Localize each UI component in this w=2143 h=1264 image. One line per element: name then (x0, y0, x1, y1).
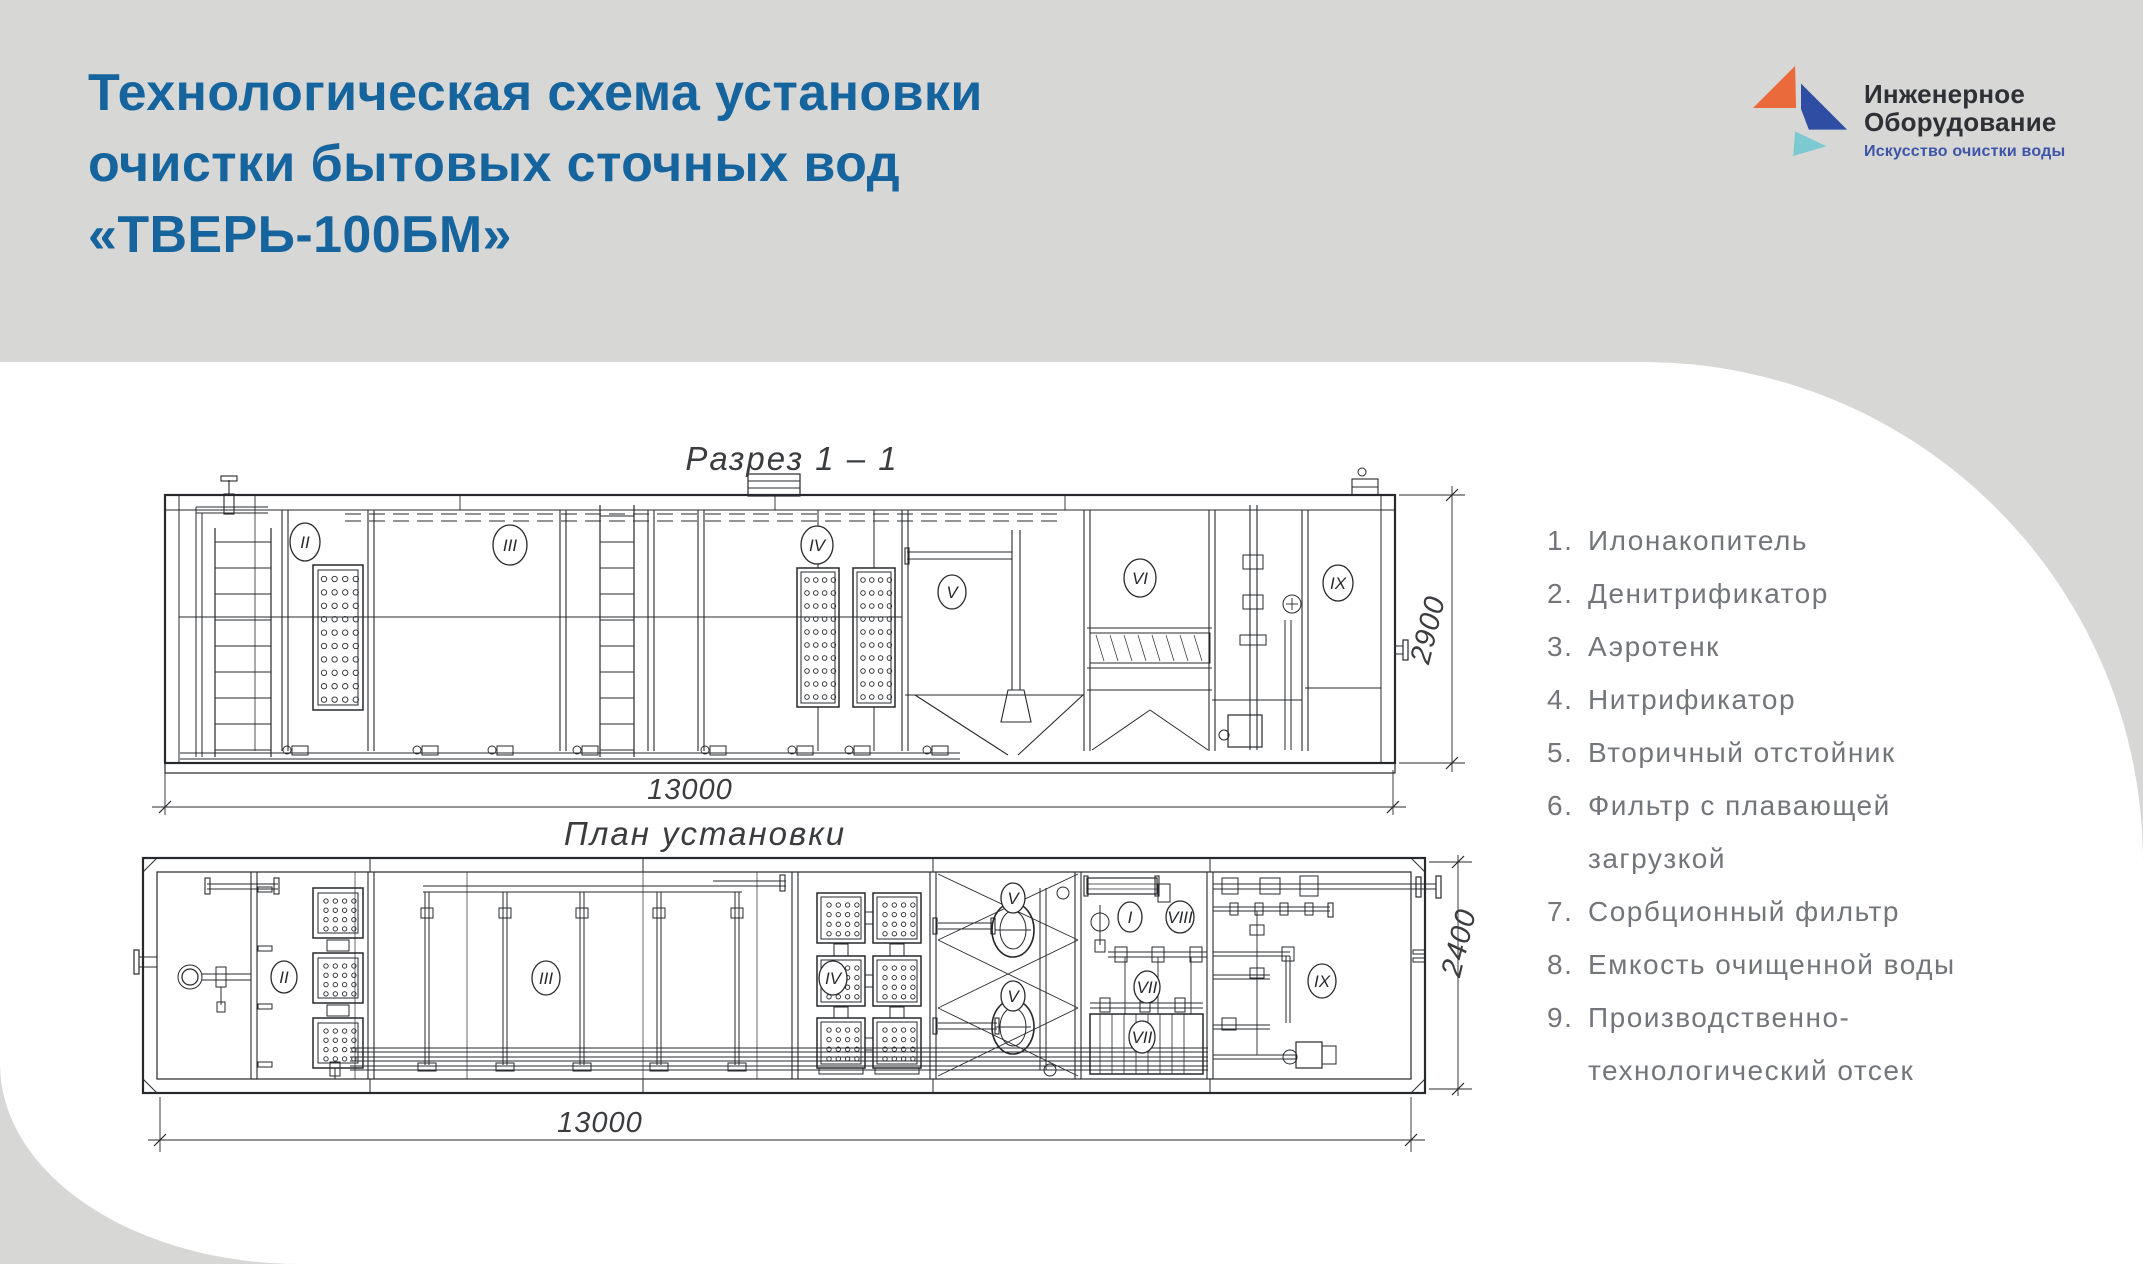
section-title: Разрез 1 – 1 (685, 440, 898, 477)
legend-item-text: Емкость очищенной воды (1588, 938, 1987, 991)
svg-text:VI: VI (1132, 569, 1148, 588)
logo-name-line-1: Инженерное (1864, 80, 2065, 108)
technical-drawings: II III IV V VI IX II III IV V V I VIII V… (110, 425, 1500, 1170)
plan-label-VIII: VIII (1166, 901, 1194, 933)
logo-text: Инженерное Оборудование Искусство очистк… (1864, 60, 2065, 161)
section-width-dimension: 13000 (647, 774, 733, 806)
svg-text:VII: VII (1137, 978, 1158, 997)
legend-item: 9.Производственно-технологический отсек (1547, 991, 1987, 1097)
plan-label-VII2: VII (1129, 1021, 1155, 1053)
legend-item-number: 2. (1547, 567, 1588, 620)
logo-name-line-2: Оборудование (1864, 108, 2065, 136)
legend-item-number: 4. (1547, 673, 1588, 726)
logo-pinwheel-icon (1752, 60, 1850, 158)
plan-height-dimension: 2400 (1435, 906, 1483, 981)
legend-item-number: 9. (1547, 991, 1588, 1044)
legend-item-number: 1. (1547, 514, 1588, 567)
plan-label-I: I (1118, 902, 1142, 932)
slide: { "header": { "title_lines": [ "Технолог… (0, 0, 2143, 1264)
plan-width-dimension: 13000 (557, 1107, 643, 1139)
section-label-VI: VI (1124, 559, 1156, 597)
svg-text:V: V (1007, 889, 1020, 908)
legend-item: 2.Денитрификатор (1547, 567, 1987, 620)
legend-item-number: 6. (1547, 779, 1588, 832)
section-label-II: II (290, 523, 320, 561)
page-title-line-3: «ТВЕРЬ-100БМ» (88, 200, 983, 271)
legend-item: 8.Емкость очищенной воды (1547, 938, 1987, 991)
legend-item: 5.Вторичный отстойник (1547, 726, 1987, 779)
section-label-IX: IX (1323, 565, 1353, 601)
plan-label-IV: IV (819, 961, 847, 995)
legend-item-text: Денитрификатор (1588, 567, 1987, 620)
plan-drawing (134, 855, 1472, 1152)
legend-item: 7.Сорбционный фильтр (1547, 885, 1987, 938)
legend-item-text: Илонакопитель (1588, 514, 1987, 567)
svg-text:III: III (539, 969, 553, 988)
svg-text:II: II (279, 968, 289, 987)
legend-item: 1.Илонакопитель (1547, 514, 1987, 567)
section-label-III: III (493, 525, 527, 565)
section-drawing (152, 468, 1465, 815)
legend-item-text: Нитрификатор (1588, 673, 1987, 726)
svg-text:V: V (946, 583, 959, 602)
page-title-line-1: Технологическая схема установки (88, 58, 983, 129)
plan-label-II: II (271, 961, 297, 993)
legend-item-number: 7. (1547, 885, 1588, 938)
legend-item-number: 8. (1547, 938, 1588, 991)
svg-text:VIII: VIII (1167, 908, 1193, 927)
company-logo: Инженерное Оборудование Искусство очистк… (1752, 60, 2065, 161)
svg-text:IV: IV (809, 536, 827, 555)
plan-label-V1: V (1001, 883, 1025, 913)
svg-text:III: III (503, 536, 517, 555)
legend-item-text: Сорбционный фильтр (1588, 885, 1987, 938)
section-height-dimension: 2900 (1404, 593, 1452, 668)
plan-label-VII1: VII (1134, 971, 1160, 1003)
legend-item-number: 5. (1547, 726, 1588, 779)
svg-text:IX: IX (1314, 972, 1331, 991)
svg-text:IV: IV (825, 969, 843, 988)
legend-item-text: Аэротенк (1588, 620, 1987, 673)
logo-tagline: Искусство очистки воды (1864, 143, 2065, 161)
plan-label-V2: V (1001, 981, 1025, 1011)
page-title: Технологическая схема установки очистки … (88, 58, 983, 271)
legend-item: 4.Нитрификатор (1547, 673, 1987, 726)
legend-item: 6.Фильтр с плавающей загрузкой (1547, 779, 1987, 885)
legend-list: 1.Илонакопитель 2.Денитрификатор 3.Аэрот… (1547, 514, 1987, 1097)
svg-text:VII: VII (1132, 1028, 1153, 1047)
legend-item: 3.Аэротенк (1547, 620, 1987, 673)
svg-text:II: II (300, 533, 310, 552)
svg-text:I: I (1128, 908, 1133, 927)
legend-item-text: Вторичный отстойник (1588, 726, 1987, 779)
svg-text:IX: IX (1330, 574, 1347, 593)
section-label-IV: IV (801, 526, 833, 564)
legend-item-text: Производственно-технологический отсек (1588, 991, 1987, 1097)
plan-label-IX: IX (1308, 964, 1336, 998)
section-label-V: V (938, 575, 966, 609)
legend-item-number: 3. (1547, 620, 1588, 673)
plan-title: План установки (564, 815, 846, 852)
legend-item-text: Фильтр с плавающей загрузкой (1588, 779, 1987, 885)
plan-label-III: III (532, 961, 560, 995)
svg-text:V: V (1007, 987, 1020, 1006)
page-title-line-2: очистки бытовых сточных вод (88, 129, 983, 200)
